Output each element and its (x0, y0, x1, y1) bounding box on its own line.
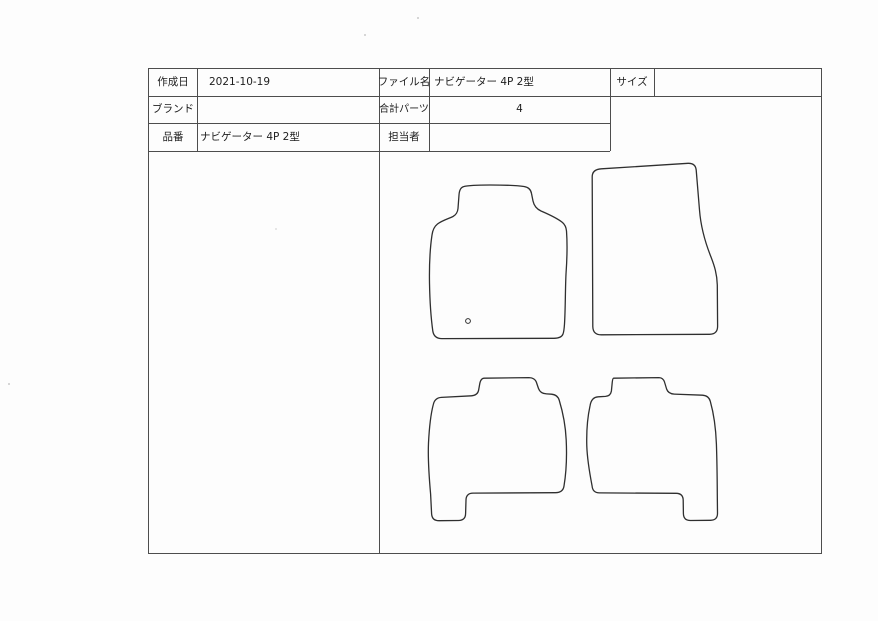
scan-speck (8, 383, 10, 385)
front-left-mat-outline (429, 185, 567, 339)
scanned-spec-sheet: 作成日 2021-10-19 ファイル名 ナビゲーター 4P 2型 サイズ ブラ… (0, 0, 878, 621)
scan-speck (364, 34, 366, 36)
scan-speck (275, 228, 277, 230)
floor-mat-pattern-drawing (0, 0, 878, 621)
front-right-mat-outline (592, 163, 717, 335)
rear-left-mat-outline (428, 378, 566, 521)
eyelet-mark-circle (466, 319, 471, 324)
rear-right-mat-outline (587, 378, 718, 521)
scan-speck (417, 17, 419, 19)
